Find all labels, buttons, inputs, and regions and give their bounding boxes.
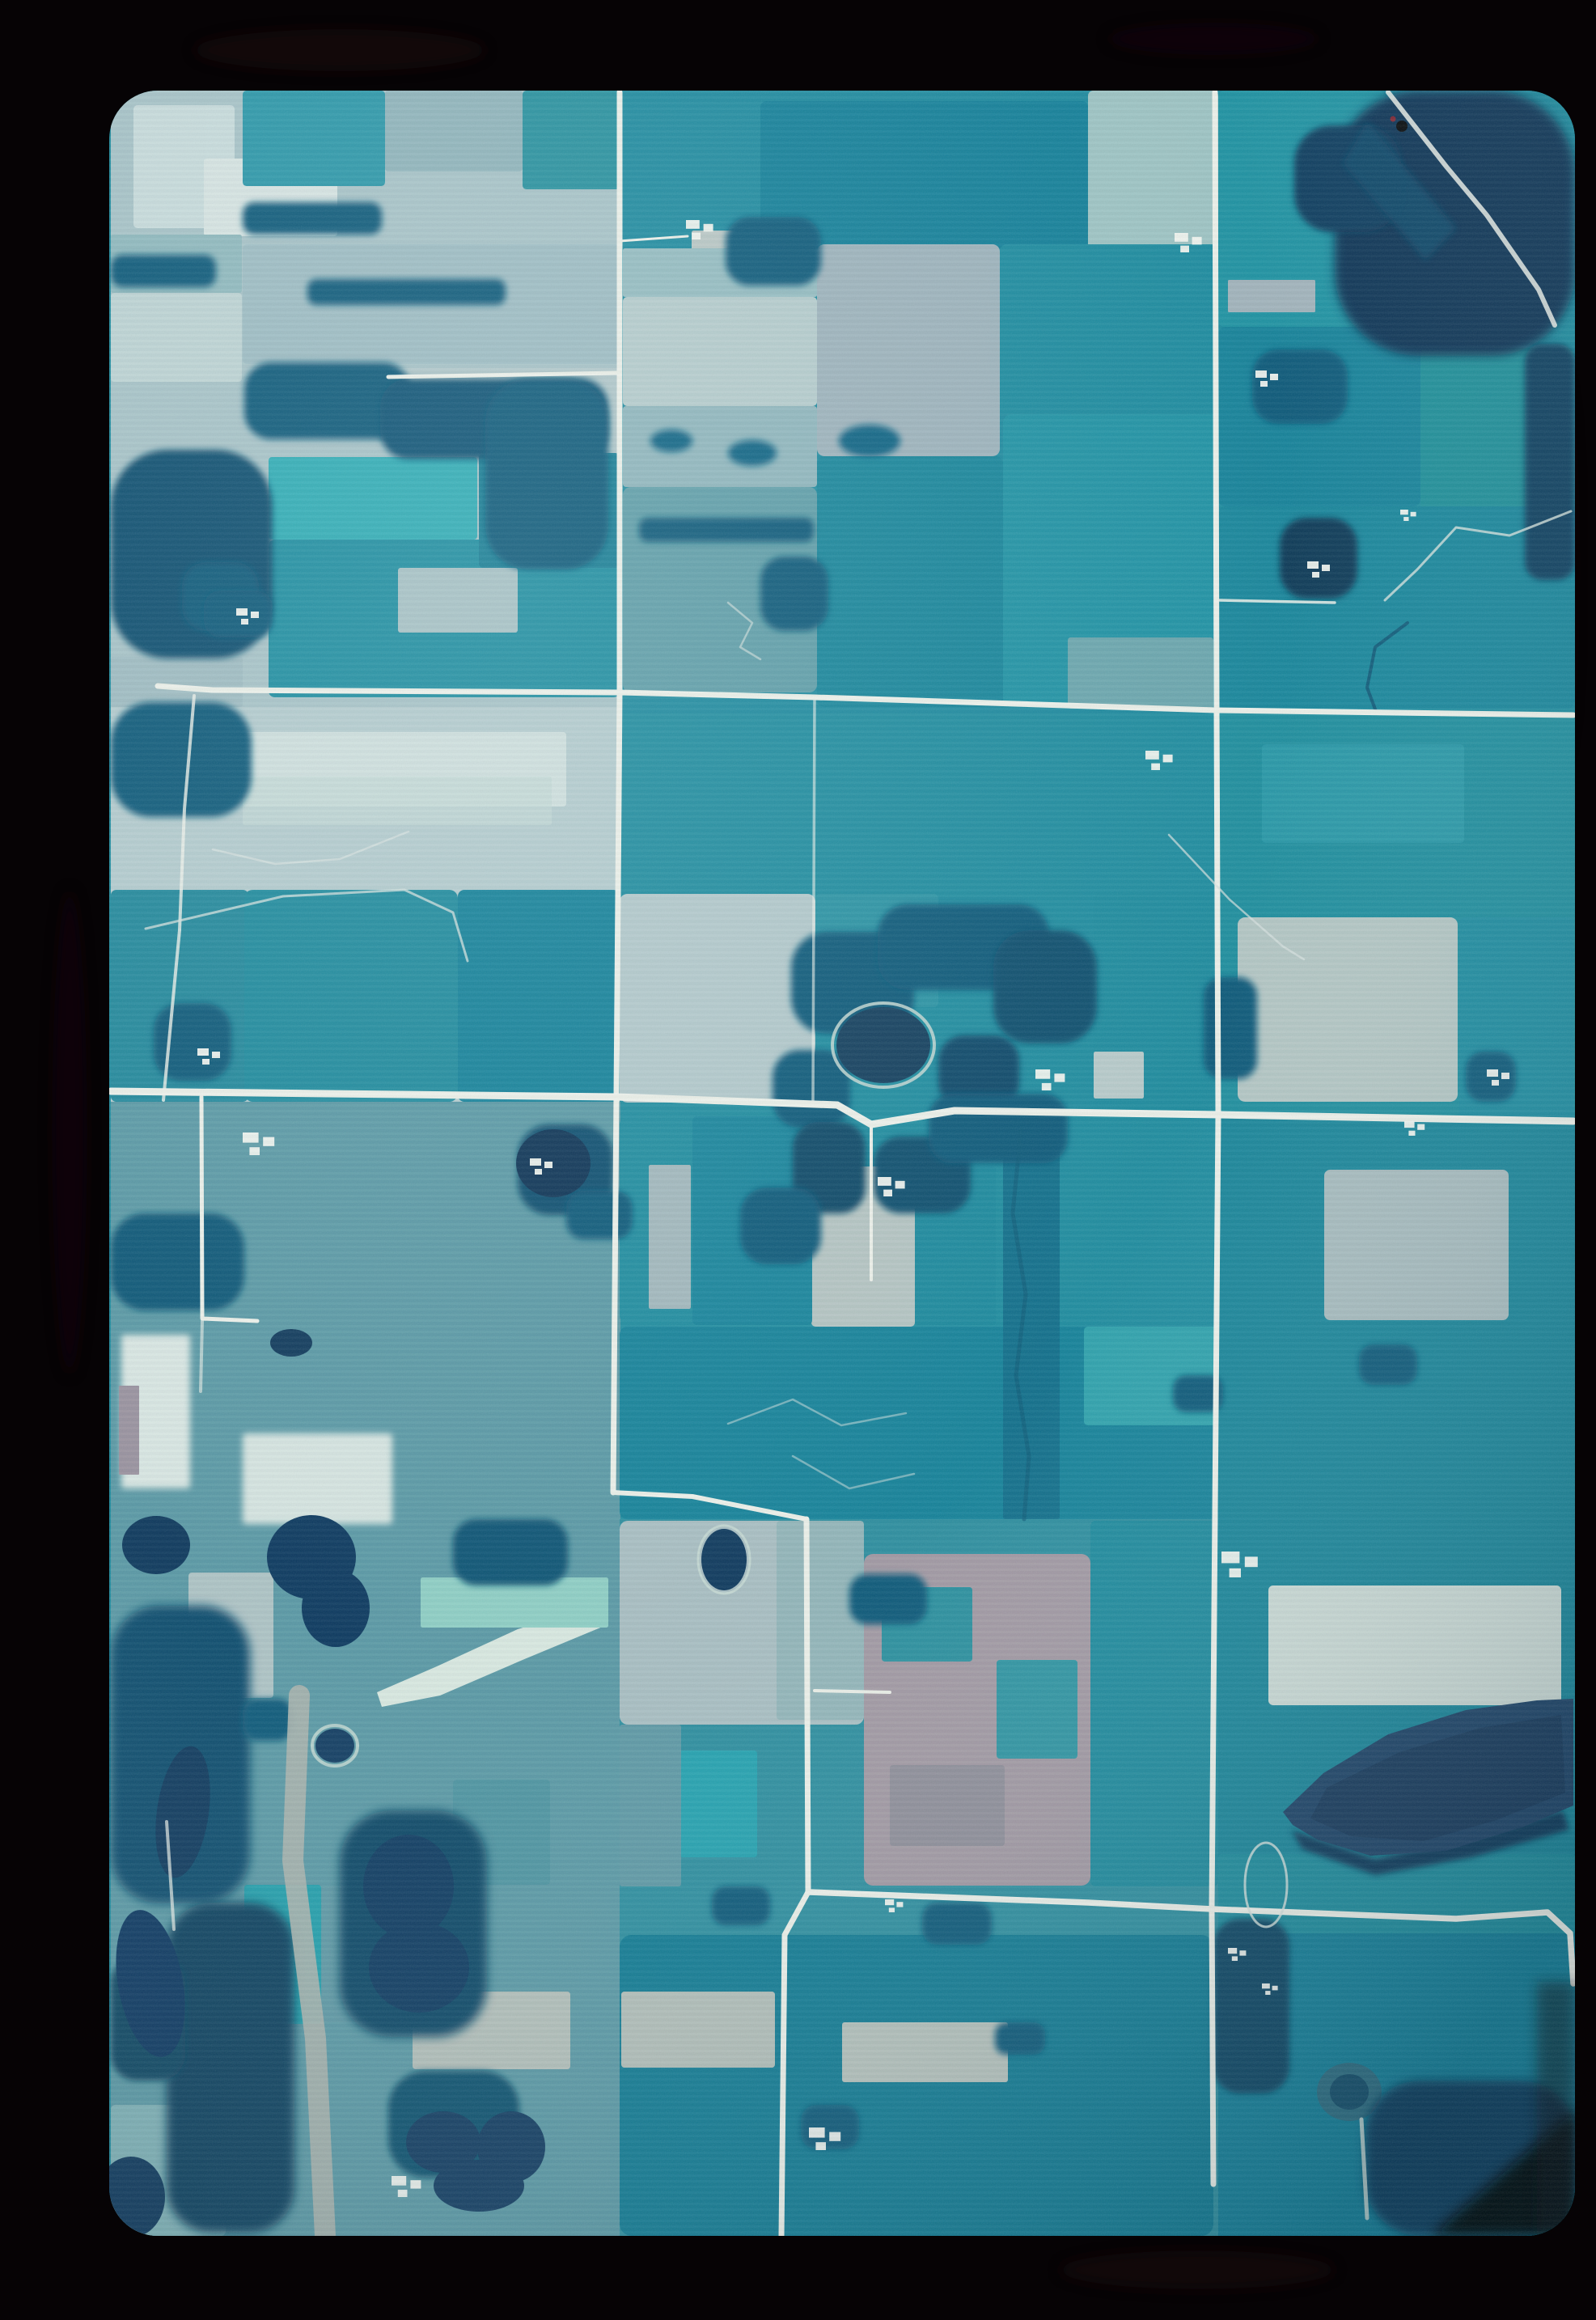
aerial-photo-svg [0,0,1596,2320]
frame-marks-shape [52,890,87,1375]
photo-area [97,91,1575,2237]
frame-marks-shape [1060,2250,1335,2289]
slide-frame: Cyan-toned color aerial photograph slide… [0,0,1596,2320]
frame-marks-shape [194,29,485,71]
film-grain [109,91,1575,2236]
aerial-photo [0,0,1596,2320]
frame-marks-shape [1108,23,1319,55]
